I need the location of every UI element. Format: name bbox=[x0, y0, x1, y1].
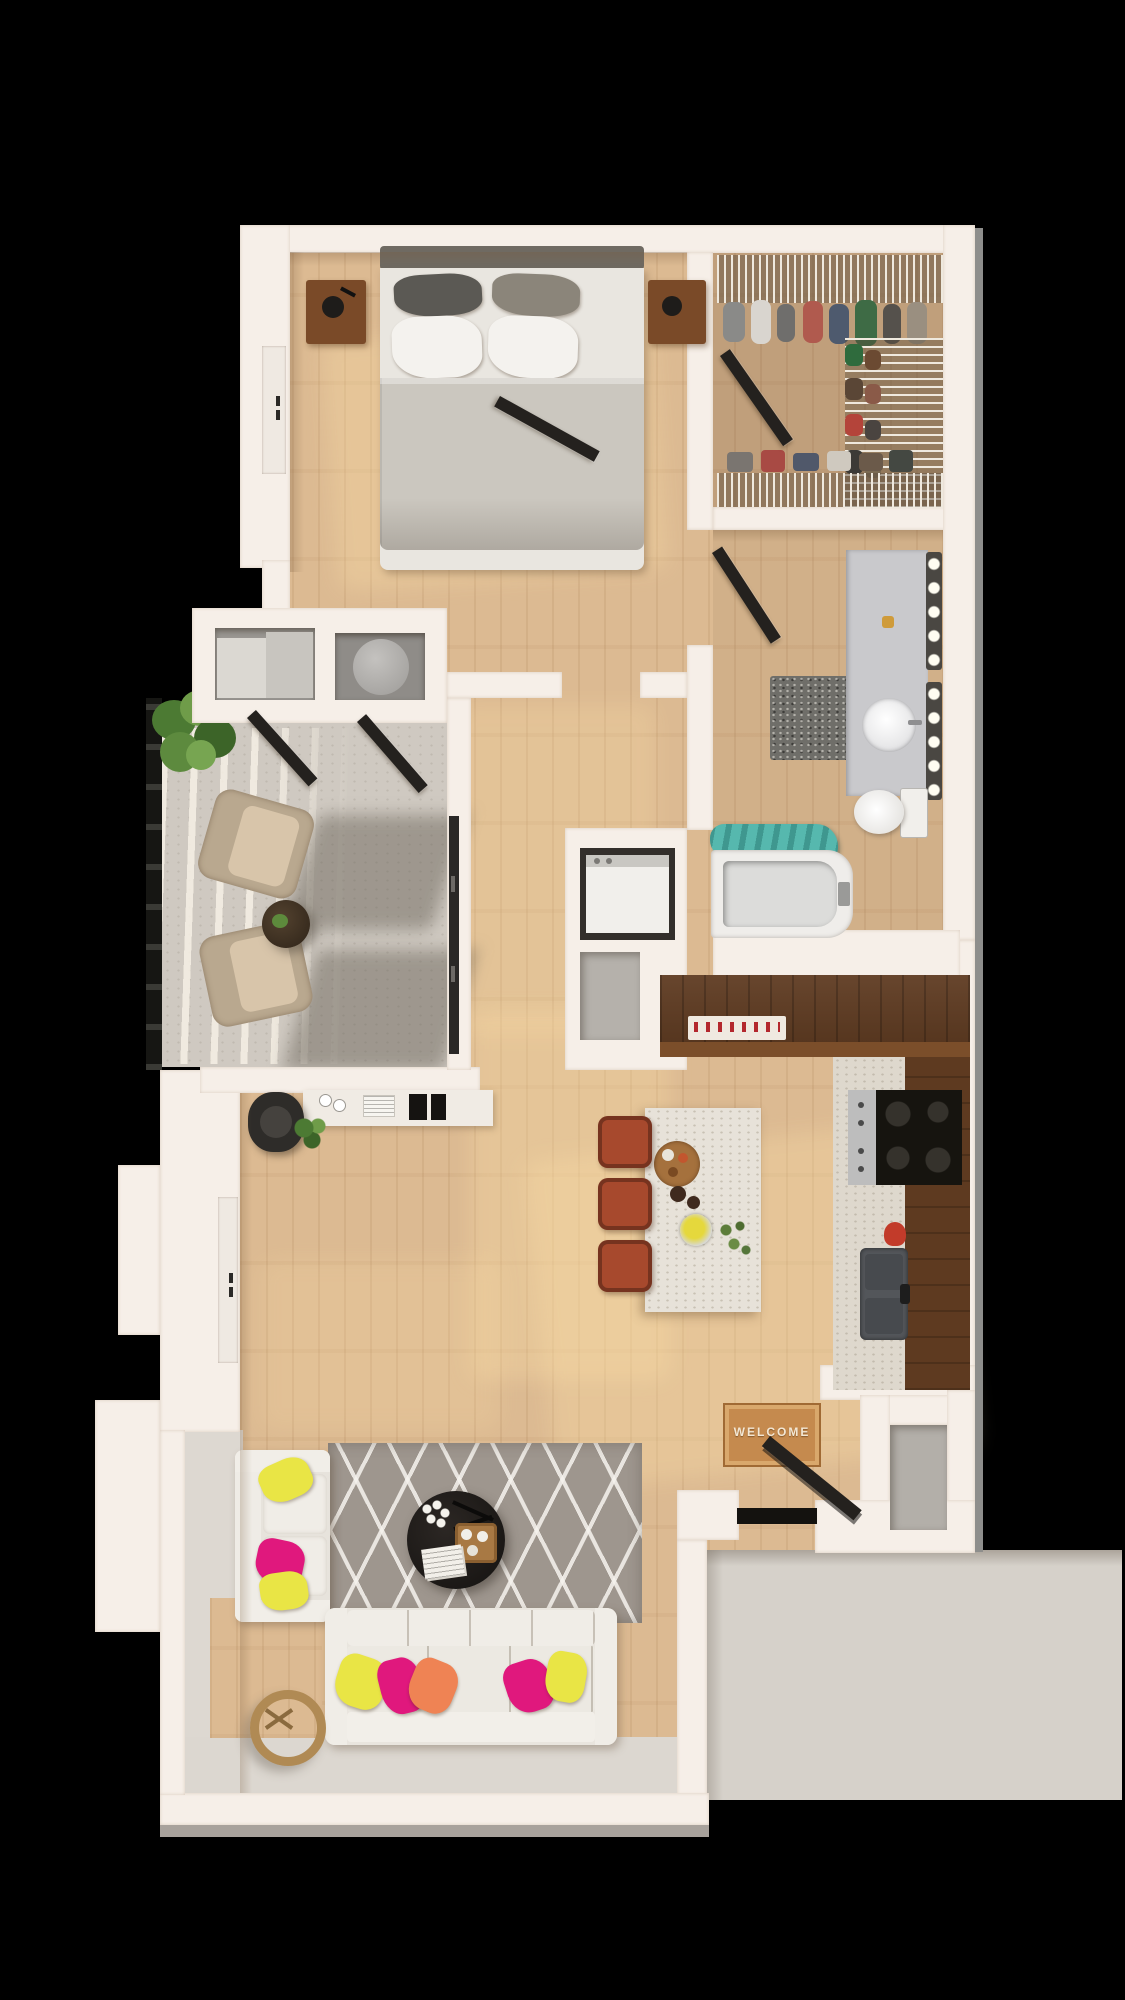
desk-plant bbox=[292, 1116, 332, 1150]
bed-pillow-white bbox=[487, 314, 579, 379]
washer bbox=[586, 855, 669, 933]
kitchen-island bbox=[645, 1108, 761, 1312]
wall-bathroom-left bbox=[687, 645, 713, 830]
pantry-niche bbox=[580, 952, 640, 1040]
toilet-tank bbox=[900, 788, 928, 838]
kitchen-sink bbox=[860, 1248, 908, 1340]
headboard bbox=[380, 246, 644, 270]
wall-living-left-lower bbox=[160, 1430, 185, 1795]
soap-item bbox=[882, 616, 894, 628]
white-flowers bbox=[419, 1499, 455, 1529]
ring-side-table bbox=[250, 1690, 326, 1766]
desk-mat bbox=[409, 1094, 427, 1120]
bed-pillow-white bbox=[391, 314, 483, 379]
vanity-light-strip bbox=[926, 682, 942, 800]
knife-rack bbox=[688, 1016, 786, 1040]
wall-slab-divider bbox=[677, 1540, 707, 1795]
closet-bottom-rack bbox=[717, 473, 943, 507]
toilet bbox=[854, 786, 928, 838]
water-heater bbox=[353, 639, 409, 695]
chair-cushion bbox=[226, 804, 302, 889]
faucet bbox=[908, 720, 922, 725]
wall-bedroom-south-a bbox=[447, 672, 562, 698]
herb-sprig bbox=[716, 1218, 754, 1260]
sofa-back-cushions bbox=[347, 1610, 595, 1646]
sliding-door-panel bbox=[217, 638, 266, 698]
small-plate bbox=[670, 1186, 686, 1202]
wall-bedroom-south-b bbox=[640, 672, 687, 698]
wall-bottom bbox=[160, 1793, 709, 1825]
range bbox=[848, 1090, 962, 1185]
wall-bumpout-upper bbox=[118, 1165, 160, 1335]
vanity-sink bbox=[862, 698, 916, 752]
sliding-door-panel bbox=[266, 632, 313, 698]
exterior-edge-strip bbox=[975, 228, 983, 1552]
range-control-panel bbox=[848, 1090, 876, 1185]
desk-mat bbox=[431, 1094, 446, 1120]
coffee-cup bbox=[333, 1099, 346, 1112]
toilet-bowl bbox=[854, 790, 904, 834]
bedroom-window bbox=[262, 346, 286, 474]
exterior-landing-slab bbox=[705, 1550, 1122, 1800]
coffee-table bbox=[407, 1491, 505, 1589]
wall-bumpout-lower bbox=[95, 1400, 160, 1632]
sink-faucet bbox=[900, 1284, 910, 1304]
floorplan-stage: WELCOME bbox=[0, 0, 1125, 2000]
food-tray bbox=[654, 1141, 700, 1187]
entry-closet-interior bbox=[890, 1425, 947, 1530]
bar-stool bbox=[598, 1116, 652, 1168]
bar-stool bbox=[598, 1178, 652, 1230]
bottom-wall-outer-shadow bbox=[160, 1825, 709, 1837]
vanity-light-strip bbox=[926, 552, 942, 670]
living-window bbox=[218, 1197, 238, 1363]
bath-rug bbox=[770, 676, 852, 760]
coffee-cup bbox=[319, 1094, 332, 1107]
bar-stool bbox=[598, 1240, 652, 1292]
table-plant-sprig bbox=[272, 914, 288, 928]
bathroom-vanity bbox=[846, 550, 928, 796]
wall-bedroom-left-lower bbox=[262, 560, 290, 612]
welcome-doormat: WELCOME bbox=[723, 1403, 821, 1467]
kitchen-counter-lip bbox=[660, 1042, 970, 1057]
open-magazine bbox=[363, 1095, 395, 1117]
tub-faucet bbox=[838, 882, 850, 906]
sliding-closet-niche bbox=[215, 628, 315, 700]
bed-pillow-dark bbox=[393, 272, 483, 319]
water-heater-niche bbox=[335, 633, 425, 700]
kettle-red bbox=[884, 1222, 906, 1246]
small-plate bbox=[687, 1196, 700, 1209]
bathtub-basin bbox=[723, 861, 837, 927]
entry-threshold bbox=[737, 1508, 817, 1524]
laundry-niche bbox=[580, 848, 675, 940]
nightstand bbox=[648, 280, 706, 344]
nightstand bbox=[306, 280, 366, 344]
cooktop bbox=[876, 1090, 962, 1185]
table-lamp bbox=[322, 296, 344, 318]
table-lamp bbox=[662, 296, 682, 316]
balcony-sliding-door bbox=[449, 816, 459, 1054]
folded-clothes-row bbox=[717, 448, 943, 476]
fruit-bowl bbox=[680, 1214, 712, 1246]
balcony-side-table bbox=[262, 900, 310, 948]
wall-closet-bathroom bbox=[713, 507, 960, 530]
bathtub bbox=[711, 850, 853, 938]
magazines bbox=[421, 1544, 465, 1579]
wall-right-upper bbox=[943, 225, 975, 940]
wall-entry-left-stub bbox=[677, 1490, 739, 1540]
